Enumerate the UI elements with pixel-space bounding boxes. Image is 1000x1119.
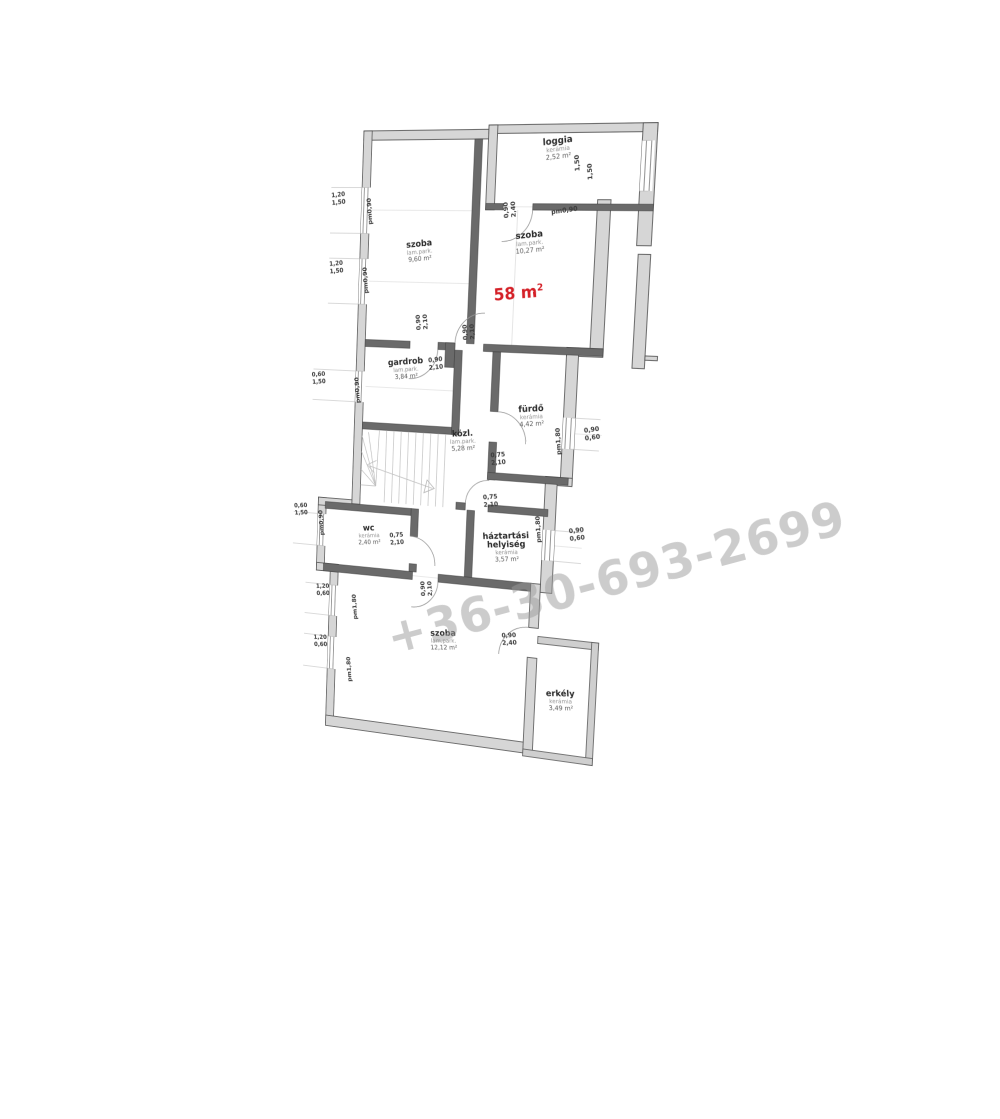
room-name: erkély <box>546 688 576 699</box>
dimension-label: 0,900,60 <box>584 425 601 442</box>
dimension-label: 0,900,60 <box>568 526 585 542</box>
dimension-value: 1,50 <box>312 378 326 386</box>
dimension-label: 1,50 <box>586 163 594 180</box>
svg-text:0,601,50: 0,601,50 <box>312 371 326 386</box>
svg-text:wckerámia2,40 m²: wckerámia2,40 m² <box>357 522 381 546</box>
dimension-value: pm0,90 <box>366 198 374 225</box>
svg-text:pm0,90: pm0,90 <box>366 198 374 225</box>
dimension-value: pm1,80 <box>351 594 359 619</box>
dimension-value: 2,40 <box>502 639 517 647</box>
total-area-superscript: 2 <box>537 283 544 294</box>
room-area: 9,60 m² <box>408 254 432 264</box>
dimension-value: 2,10 <box>422 314 430 330</box>
dimension-label: pm1,80 <box>346 657 354 682</box>
room-label-szoba-2: szobalam.park.10,27 m² <box>515 228 546 256</box>
dimension-label: 1,50 <box>574 154 582 171</box>
dimension-value: pm1,80 <box>555 428 563 455</box>
dimension-label: 1,201,50 <box>331 191 346 207</box>
svg-text:0,902,10: 0,902,10 <box>462 324 477 341</box>
svg-text:0,902,10: 0,902,10 <box>415 314 430 331</box>
dimension-label: pm1,80 <box>535 516 543 543</box>
svg-text:szobalam.park.10,27 m²: szobalam.park.10,27 m² <box>515 228 546 256</box>
dimension-label: 0,902,40 <box>503 201 518 219</box>
dimension-value: 1,50 <box>294 509 308 516</box>
svg-text:fürdőkerámia4,42 m²: fürdőkerámia4,42 m² <box>518 402 545 428</box>
room-area: 5,28 m² <box>451 445 476 453</box>
dimension-value: 1,50 <box>586 163 594 180</box>
room-name: wc <box>363 522 375 532</box>
dimension-value: 2,10 <box>483 501 498 509</box>
svg-text:háztartásihelyiségkerámia3,57: háztartásihelyiségkerámia3,57 m² <box>482 530 530 564</box>
dimension-label: 1,201,50 <box>329 260 344 276</box>
svg-text:0,752,10: 0,752,10 <box>490 451 506 467</box>
svg-text:1,201,50: 1,201,50 <box>331 191 346 207</box>
room-label-erkely: erkélykerámia3,49 m² <box>546 688 577 713</box>
room-label-furdo: fürdőkerámia4,42 m² <box>518 402 545 428</box>
dimension-value: 1,50 <box>574 154 582 171</box>
staircase-group <box>360 429 446 507</box>
dimension-label: pm1,80 <box>555 428 563 455</box>
room-label-kozl: közl.lam.park.5,28 m² <box>449 427 476 453</box>
room-label-loggia: loggiakerámia2,52 m² <box>542 133 573 163</box>
dimension-value: 1,50 <box>330 267 344 275</box>
room-name: közl. <box>452 427 474 438</box>
svg-text:0,900,60: 0,900,60 <box>568 526 585 542</box>
room-area: 3,57 m² <box>495 556 520 564</box>
svg-text:0,900,60: 0,900,60 <box>584 425 601 442</box>
room-area: 3,49 m² <box>549 705 574 713</box>
dimension-label: 0,902,10 <box>420 581 434 596</box>
dimension-label: 1,200,60 <box>313 634 327 648</box>
dimension-value: 0,60 <box>569 534 585 543</box>
svg-text:1,200,60: 1,200,60 <box>316 583 330 597</box>
dimension-value: 2,10 <box>469 324 477 340</box>
room-area: 2,40 m² <box>358 539 381 546</box>
dimension-value: 0,60 <box>316 590 330 597</box>
svg-text:loggiakerámia2,52 m²: loggiakerámia2,52 m² <box>542 133 573 163</box>
svg-text:0,902,40: 0,902,40 <box>503 201 518 219</box>
dimension-label: 1,200,60 <box>316 583 330 597</box>
dimension-value: pm1,80 <box>535 516 543 543</box>
total-area-label-group: 58 m2 <box>492 280 544 306</box>
dimension-value: 2,10 <box>426 581 433 596</box>
svg-text:erkélykerámia3,49 m²: erkélykerámia3,49 m² <box>546 688 577 713</box>
dimension-value: 0,60 <box>294 502 308 509</box>
dimension-label: 0,902,10 <box>415 314 430 331</box>
total-area-label: 58 m2 <box>493 281 544 304</box>
svg-text:1,50: 1,50 <box>586 163 594 180</box>
svg-text:szobalam.park.9,60 m²: szobalam.park.9,60 m² <box>406 237 433 264</box>
room-label-wc: wckerámia2,40 m² <box>357 522 381 546</box>
dimension-value: 2,40 <box>510 201 518 218</box>
svg-text:0,752,10: 0,752,10 <box>483 493 499 509</box>
svg-text:0,902,10: 0,902,10 <box>428 356 444 372</box>
svg-text:közl.lam.park.5,28 m²: közl.lam.park.5,28 m² <box>449 427 476 453</box>
svg-text:0,902,10: 0,902,10 <box>420 581 434 596</box>
svg-text:1,200,60: 1,200,60 <box>313 634 327 648</box>
floor-plan-svg: szobalam.park.9,60 m²szobalam.park.10,27… <box>284 102 683 806</box>
dimension-value: 2,10 <box>429 363 444 372</box>
total-area-value: 58 m <box>493 282 537 305</box>
svg-text:pm1,80: pm1,80 <box>346 657 354 682</box>
dimension-value: 2,10 <box>491 459 506 467</box>
dimension-value: 0,60 <box>314 641 328 648</box>
svg-text:0,601,50: 0,601,50 <box>294 502 308 517</box>
svg-text:pm1,80: pm1,80 <box>351 594 359 619</box>
dimension-label: 0,601,50 <box>294 502 308 517</box>
svg-text:0,752,10: 0,752,10 <box>389 531 404 546</box>
dimension-label: 0,752,10 <box>389 531 404 546</box>
dimension-value: 1,20 <box>316 583 330 590</box>
dimension-label: pm1,80 <box>351 594 359 619</box>
dimension-label: 0,752,10 <box>483 493 499 509</box>
room-name: helyiség <box>487 538 526 549</box>
room-area: 2,52 m² <box>546 151 572 162</box>
dimension-value: 0,60 <box>584 433 600 442</box>
svg-text:pm1,80: pm1,80 <box>535 516 543 543</box>
dimension-label: 0,902,10 <box>428 356 444 372</box>
room-area: 4,42 m² <box>519 420 544 429</box>
room-area: 3,84 m² <box>395 372 419 381</box>
dimension-value: pm1,80 <box>346 657 354 682</box>
floor-plan-page: szobalam.park.9,60 m²szobalam.park.10,27… <box>0 0 1000 1119</box>
dimension-label: 0,752,10 <box>490 451 506 467</box>
dimension-label: 0,902,10 <box>462 324 477 341</box>
svg-text:pm1,80: pm1,80 <box>555 428 563 455</box>
dimension-value: 2,10 <box>390 539 404 547</box>
dimension-label: 0,601,50 <box>312 371 326 386</box>
room-label-szoba-1: szobalam.park.9,60 m² <box>406 237 433 264</box>
svg-text:1,50: 1,50 <box>574 154 582 171</box>
room-label-haztartasi: háztartásihelyiségkerámia3,57 m² <box>482 530 530 564</box>
room-area: 10,27 m² <box>515 246 545 256</box>
dimension-value: 1,20 <box>313 634 327 641</box>
room-name: fürdő <box>518 402 544 414</box>
svg-text:1,201,50: 1,201,50 <box>329 260 344 276</box>
dimension-value: 1,50 <box>332 198 346 207</box>
dimension-label: pm0,90 <box>366 198 374 225</box>
